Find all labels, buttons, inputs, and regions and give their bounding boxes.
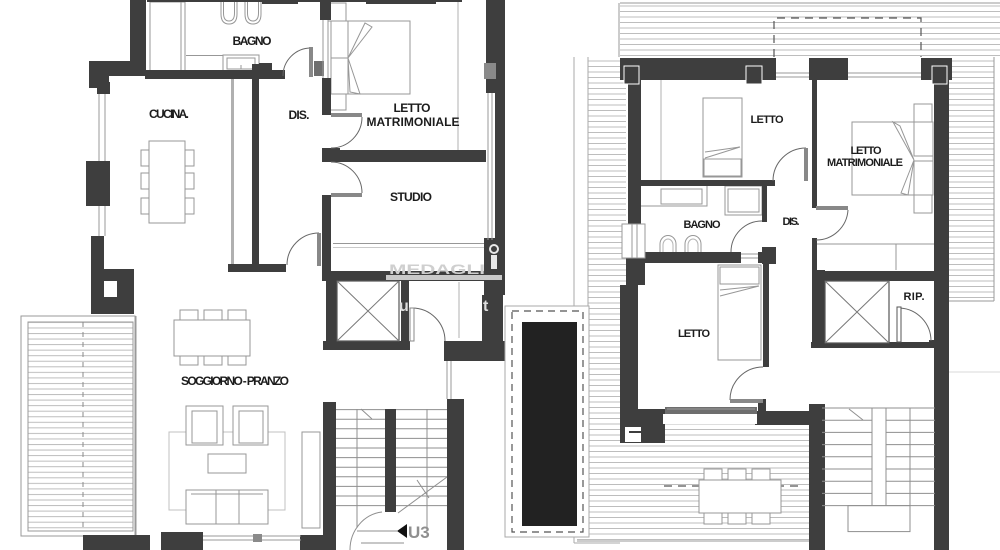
svg-text:MEDAGLI: MEDAGLI <box>389 261 485 277</box>
svg-text:MATRIMONIALE: MATRIMONIALE <box>827 157 903 169</box>
svg-text:STUDIO: STUDIO <box>390 190 432 204</box>
svg-text:u: u <box>399 298 409 315</box>
svg-text:t: t <box>483 298 489 315</box>
svg-text:RIP.: RIP. <box>904 291 925 303</box>
svg-text:CUCINA.: CUCINA. <box>149 107 189 121</box>
svg-text:LETTO: LETTO <box>394 101 431 115</box>
svg-text:LETTO: LETTO <box>851 145 882 157</box>
svg-text:DIS.: DIS. <box>783 216 800 228</box>
svg-text:MATRIMONIALE: MATRIMONIALE <box>367 115 460 129</box>
svg-text:U3: U3 <box>408 523 430 542</box>
svg-text:DIS.: DIS. <box>289 108 310 122</box>
svg-text:LETTO: LETTO <box>751 114 784 126</box>
svg-text:BAGNO: BAGNO <box>233 34 272 48</box>
svg-text:SOGGIORNO - PRANZO: SOGGIORNO - PRANZO <box>181 374 289 388</box>
svg-text:BAGNO: BAGNO <box>684 219 721 231</box>
svg-text:LETTO: LETTO <box>678 328 710 340</box>
